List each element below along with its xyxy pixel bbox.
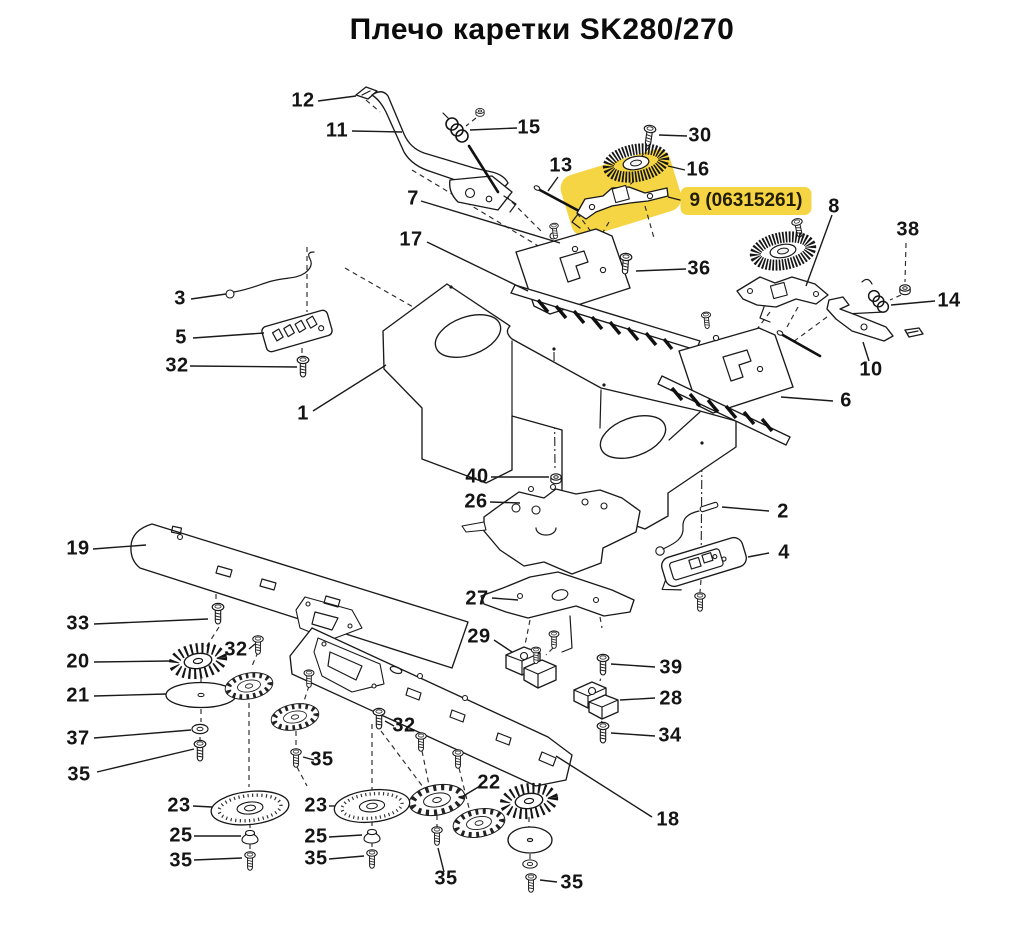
part-37-washer bbox=[192, 724, 208, 733]
callout-7: 7 bbox=[407, 188, 419, 211]
part-35-screw-d bbox=[367, 850, 377, 869]
part-39-screw bbox=[597, 654, 609, 675]
callout-32-b: 32 bbox=[224, 639, 247, 662]
callout-32-a: 32 bbox=[165, 355, 188, 378]
callout-9-highlighted: 9 (06315261) bbox=[680, 187, 811, 215]
part-25-grommet-b bbox=[364, 829, 380, 843]
exploded-view-drawing bbox=[0, 0, 1024, 936]
callout-39: 39 bbox=[659, 657, 682, 680]
callout-20: 20 bbox=[66, 651, 89, 674]
callout-35-d: 35 bbox=[304, 848, 327, 871]
part-33-screw bbox=[212, 603, 224, 624]
part-3-wire bbox=[226, 252, 314, 298]
callout-26: 26 bbox=[464, 491, 487, 514]
gear-d bbox=[451, 805, 507, 842]
part-34-screw bbox=[597, 722, 609, 743]
callout-17: 17 bbox=[399, 229, 422, 252]
part-8-brush-assembly bbox=[737, 218, 828, 322]
callout-30: 30 bbox=[688, 125, 711, 148]
callout-2: 2 bbox=[777, 501, 789, 524]
callout-27: 27 bbox=[465, 588, 488, 611]
callout-38: 38 bbox=[896, 219, 919, 242]
callout-32-c: 32 bbox=[392, 715, 415, 738]
part-11-lever bbox=[372, 92, 516, 212]
part-25-grommet-a bbox=[242, 830, 258, 844]
part-20-brush-gear bbox=[172, 645, 223, 677]
part-4-slider-block bbox=[654, 535, 750, 595]
callout-29: 29 bbox=[467, 626, 490, 649]
callout-23-b: 23 bbox=[304, 795, 327, 818]
page-title: Плечо каретки SK280/270 bbox=[350, 13, 735, 47]
part-5-block bbox=[261, 309, 334, 353]
part-30-screw bbox=[642, 125, 656, 147]
callout-36: 36 bbox=[687, 258, 710, 281]
part-35-screw-a bbox=[194, 740, 206, 761]
callout-28: 28 bbox=[659, 688, 682, 711]
callout-35-a: 35 bbox=[67, 764, 90, 787]
part-27-bracket bbox=[481, 572, 634, 652]
part-38-nut bbox=[900, 285, 910, 295]
callout-10: 10 bbox=[859, 359, 882, 382]
callout-21: 21 bbox=[66, 685, 89, 708]
callout-34: 34 bbox=[658, 725, 681, 748]
part-40-nut bbox=[551, 474, 561, 484]
part-22-gear bbox=[407, 780, 468, 819]
part-23-wheel-a bbox=[209, 788, 290, 829]
part-35-screw-e bbox=[432, 827, 442, 846]
part-32-screw-a bbox=[297, 356, 309, 377]
callout-35-e: 35 bbox=[434, 868, 457, 891]
callout-6: 6 bbox=[840, 390, 852, 413]
callout-11: 11 bbox=[326, 120, 348, 143]
callout-15: 15 bbox=[517, 117, 540, 140]
callout-12: 12 bbox=[291, 90, 314, 113]
callout-5: 5 bbox=[175, 327, 187, 350]
callout-18: 18 bbox=[656, 809, 679, 832]
part-32-screw-c bbox=[373, 708, 385, 729]
callout-19: 19 bbox=[66, 538, 89, 561]
callout-35-f: 35 bbox=[560, 872, 583, 895]
gear-b bbox=[269, 700, 321, 734]
callout-14: 14 bbox=[937, 290, 960, 313]
screw-s4 bbox=[453, 750, 463, 769]
callout-23-a: 23 bbox=[167, 795, 190, 818]
disc-f bbox=[508, 827, 552, 853]
part-35-screw-f bbox=[526, 874, 536, 893]
callout-8: 8 bbox=[828, 196, 840, 219]
part-29-blocks bbox=[506, 647, 556, 688]
part-12-cap bbox=[356, 87, 377, 99]
part-35-screw-c bbox=[245, 852, 255, 871]
part-35-screw-b bbox=[291, 749, 301, 768]
callout-22: 22 bbox=[477, 772, 500, 795]
callout-1: 1 bbox=[297, 403, 309, 426]
part-23-wheel-b bbox=[333, 786, 412, 826]
part-28-blocks bbox=[574, 682, 618, 719]
screw-near-29 bbox=[549, 631, 559, 649]
callout-25-a: 25 bbox=[169, 825, 192, 848]
part-14-spring bbox=[845, 279, 888, 314]
callout-35-b: 35 bbox=[310, 749, 333, 772]
washer-f bbox=[523, 860, 537, 868]
screw-s3 bbox=[416, 733, 426, 752]
callout-13: 13 bbox=[549, 155, 572, 178]
callout-3: 3 bbox=[174, 288, 186, 311]
callout-37: 37 bbox=[66, 728, 89, 751]
callout-33: 33 bbox=[66, 613, 89, 636]
callout-40: 40 bbox=[465, 466, 488, 489]
brush-gear-e bbox=[503, 785, 554, 817]
part-26-bracket bbox=[462, 485, 640, 575]
callout-4: 4 bbox=[778, 542, 790, 565]
callout-35-c: 35 bbox=[169, 850, 192, 873]
parts-diagram-page: Плечо каретки SK280/270 12 11 15 30 16 1… bbox=[0, 0, 1024, 936]
callout-25-b: 25 bbox=[304, 826, 327, 849]
screw-under-4 bbox=[695, 593, 705, 612]
callout-16: 16 bbox=[686, 159, 709, 182]
